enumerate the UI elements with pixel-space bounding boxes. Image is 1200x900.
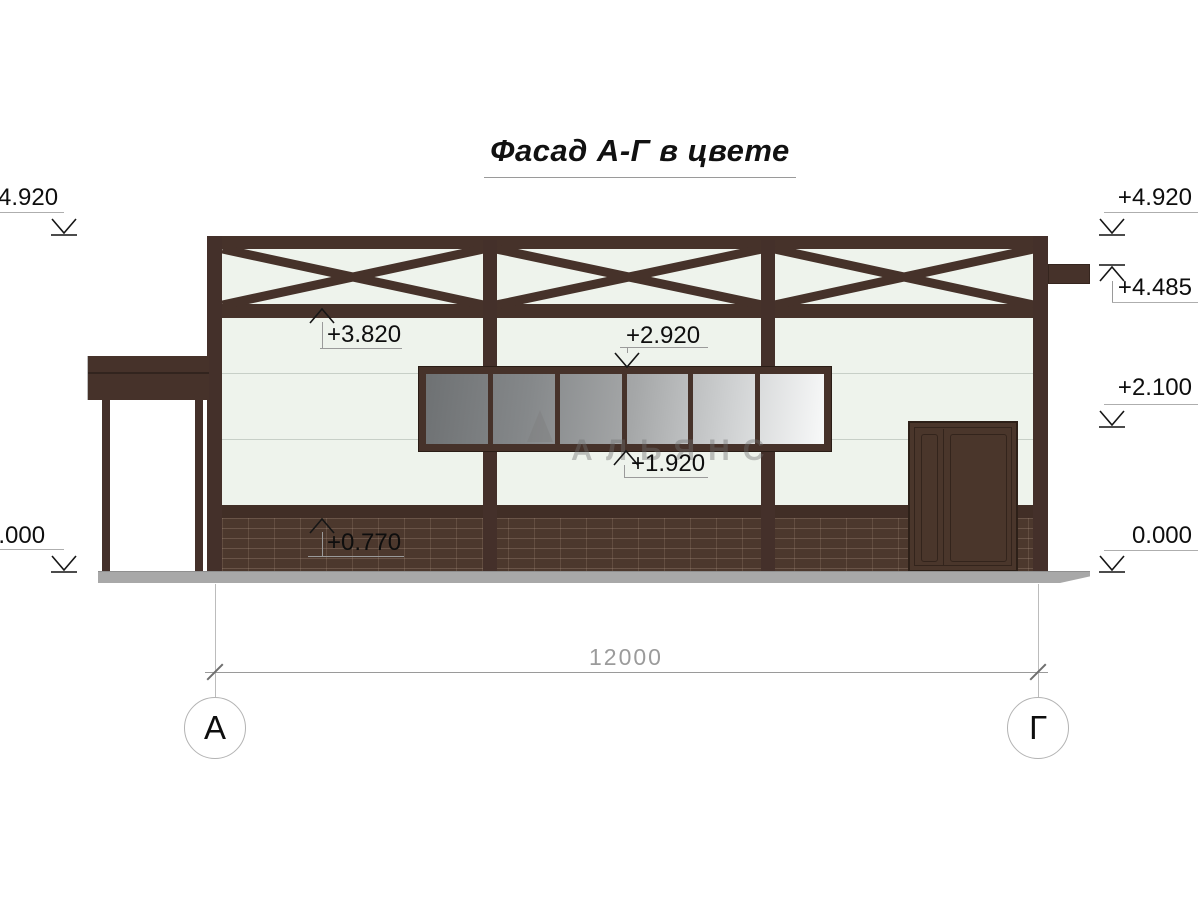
canopy-post (102, 400, 110, 571)
elevation-arrow-down-icon (614, 352, 640, 368)
label-underline (308, 556, 404, 557)
top-beam (207, 236, 1048, 249)
window-mullion (488, 374, 493, 444)
elevation-label: 0.000 (1100, 524, 1192, 548)
watermark-logo-icon (527, 410, 553, 442)
drawing-title: Фасад А-Г в цвете (340, 133, 940, 178)
ground-strip (98, 571, 1090, 583)
elevation-leader-line (0, 549, 64, 550)
cross-brace-panel (222, 249, 483, 304)
elevation-arrow-down-icon (51, 555, 77, 571)
corner-post-left (207, 236, 222, 572)
elevation-leader-line (0, 212, 64, 213)
elevation-leader-line (1112, 302, 1198, 303)
elevation-leader-line (322, 532, 323, 556)
dimension-line (205, 672, 1048, 673)
elevation-level-bar (51, 571, 77, 573)
elevation-leader-line (1104, 404, 1198, 405)
elevation-arrow-down-icon (1099, 410, 1125, 426)
elevation-level-bar (1099, 426, 1125, 428)
elevation-arrow-down-icon (1099, 555, 1125, 571)
elevation-arrow-down-icon (51, 218, 77, 234)
door-panel-narrow (921, 434, 938, 562)
elevation-label: +0.770 (327, 531, 401, 555)
elevation-label: +1.920 (631, 452, 705, 476)
door-panel-main (950, 434, 1007, 562)
elevation-label: +4.485 (1100, 276, 1192, 300)
elevation-label: +2.920 (626, 324, 700, 348)
axis-bubble-a: А (184, 697, 246, 759)
canopy-post (195, 400, 203, 571)
elevation-leader-line (1104, 550, 1198, 551)
elevation-label: +2.100 (1100, 376, 1192, 400)
label-underline (320, 348, 402, 349)
canopy-beam (87, 356, 209, 400)
axis-extension-line (215, 584, 216, 697)
elevation-label: +4.920 (0, 186, 58, 210)
roof-beam-stub (1048, 264, 1090, 284)
axis-extension-line (1038, 584, 1039, 697)
entrance-door (908, 421, 1018, 572)
cross-brace-panel (497, 249, 761, 304)
elevation-level-bar (51, 234, 77, 236)
axis-label: А (204, 709, 226, 747)
door-leaf-divider (943, 429, 944, 566)
axis-bubble-g: Г (1007, 697, 1069, 759)
elevation-leader-line (322, 322, 323, 348)
elevation-leader-line (1104, 212, 1198, 213)
label-underline (624, 477, 708, 478)
elevation-label: 0.000 (0, 524, 45, 548)
elevation-label: +4.920 (1100, 186, 1192, 210)
canopy-fascia-line (88, 372, 209, 374)
elevation-arrow-down-icon (1099, 218, 1125, 234)
cross-brace-panel (775, 249, 1033, 304)
corner-post-right (1033, 236, 1048, 572)
elevation-level-bar (1099, 234, 1125, 236)
axis-label: Г (1029, 709, 1047, 747)
dimension-value: 12000 (556, 644, 696, 671)
facade-drawing: Фасад А-Г в цвете (0, 0, 1200, 900)
elevation-leader-line (624, 465, 625, 477)
elevation-label: +3.820 (327, 323, 401, 347)
label-underline (620, 347, 708, 348)
elevation-level-bar (1099, 571, 1125, 573)
drawing-title-text: Фасад А-Г в цвете (484, 133, 796, 178)
